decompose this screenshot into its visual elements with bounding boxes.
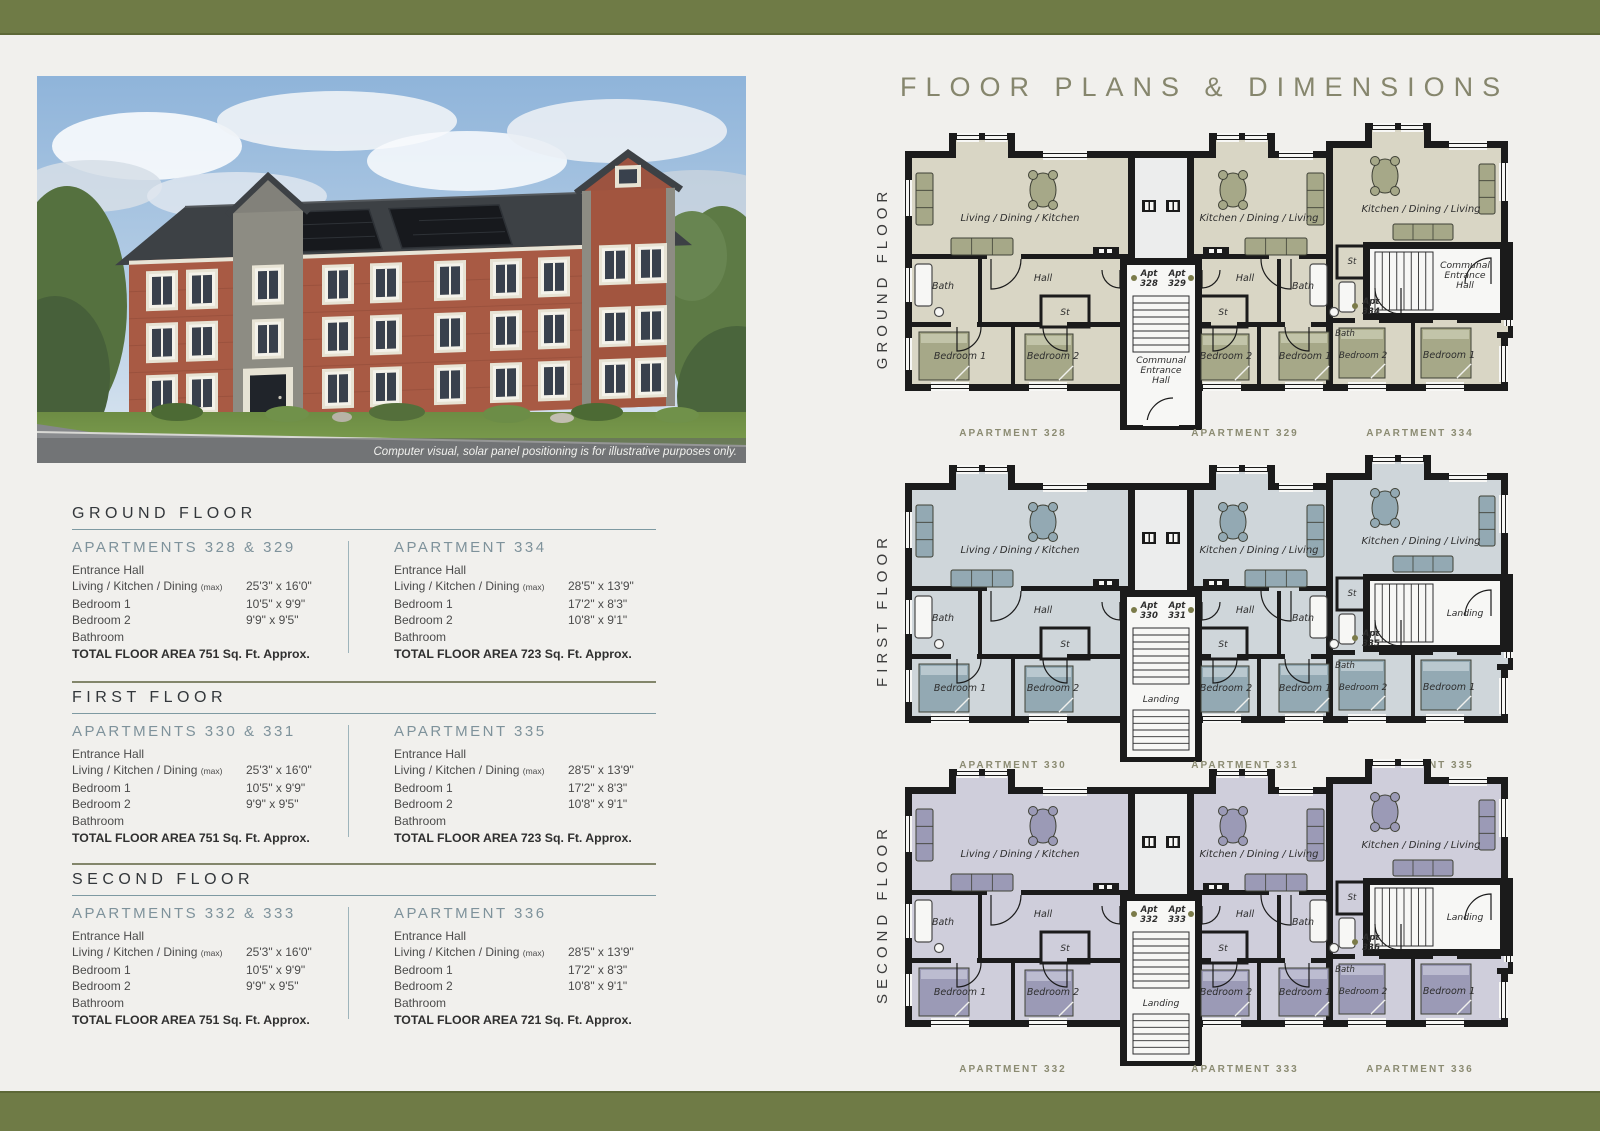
svg-text:336: 336 <box>1362 943 1380 953</box>
spec-row: Bedroom 2 9'9" x 9'5" <box>72 796 342 812</box>
column-divider <box>348 541 349 653</box>
spec-row: Bedroom 2 9'9" x 9'5" <box>72 978 342 994</box>
svg-text:Bedroom 2: Bedroom 2 <box>1027 351 1079 362</box>
room-name: Entrance Hall <box>72 929 144 943</box>
svg-text:Hall: Hall <box>1236 909 1255 920</box>
building-photo: Computer visual, solar panel positioning… <box>37 76 746 463</box>
svg-text:Bedroom 2: Bedroom 2 <box>1027 987 1079 998</box>
room-dimensions: 28'5" x 13'9" <box>568 944 634 960</box>
room-dimensions: 28'5" x 13'9" <box>568 578 634 594</box>
svg-text:332: 332 <box>1140 915 1158 925</box>
room-name: Bedroom 1 <box>394 963 453 977</box>
room-dimensions: 25'3" x 16'0" <box>246 578 312 594</box>
room-name: Living / Kitchen / Dining (max) <box>394 945 544 959</box>
spec-row: Entrance Hall <box>72 746 342 762</box>
svg-text:Hall: Hall <box>1152 375 1170 386</box>
svg-text:Bedroom 1: Bedroom 1 <box>934 351 986 362</box>
room-name: Entrance Hall <box>394 747 466 761</box>
svg-text:Kitchen / Dining / Living: Kitchen / Dining / Living <box>1199 213 1318 224</box>
svg-text:St: St <box>1060 944 1070 954</box>
room-name: Bedroom 1 <box>72 781 131 795</box>
spec-row: Bedroom 1 17'2" x 8'3" <box>394 780 656 796</box>
spec-row: Living / Kitchen / Dining (max) 25'3" x … <box>72 762 342 779</box>
floor-plan-second-floor: Apt332Apt333Apt336Living / Dining / Kitc… <box>893 754 1513 1076</box>
room-dimensions: 10'8" x 9'1" <box>568 612 627 628</box>
spec-row: Entrance Hall <box>394 562 656 578</box>
max-note: (max) <box>201 582 223 592</box>
svg-text:Bedroom 2: Bedroom 2 <box>1339 351 1388 361</box>
room-dimensions: 10'8" x 9'1" <box>568 796 627 812</box>
svg-text:Hall: Hall <box>1034 909 1053 920</box>
floor-plan-svg: Apt328Apt329Apt334Living / Dining / Kitc… <box>893 118 1513 440</box>
svg-text:Apt: Apt <box>1168 601 1187 611</box>
svg-text:Apt: Apt <box>1140 905 1159 915</box>
svg-text:Bath: Bath <box>1335 965 1355 975</box>
spec-row: Bedroom 1 17'2" x 8'3" <box>394 962 656 978</box>
spec-row: Bathroom <box>394 813 656 829</box>
solar-panel <box>389 204 512 248</box>
room-dimensions: 10'5" x 9'9" <box>246 962 305 978</box>
page-title: FLOOR PLANS & DIMENSIONS <box>900 72 1460 103</box>
svg-text:Bath: Bath <box>1292 917 1314 928</box>
spec-row: Bathroom <box>72 995 342 1011</box>
total-floor-area: TOTAL FLOOR AREA 751 Sq. Ft. Approx. <box>72 647 342 661</box>
svg-text:Bath: Bath <box>932 281 954 292</box>
photo-caption: Computer visual, solar panel positioning… <box>374 446 738 458</box>
total-floor-area: TOTAL FLOOR AREA 751 Sq. Ft. Approx. <box>72 831 342 845</box>
room-name: Bedroom 2 <box>72 979 131 993</box>
building-photo-illustration: Computer visual, solar panel positioning… <box>37 76 746 463</box>
room-dimensions: 10'8" x 9'1" <box>568 978 627 994</box>
svg-text:St: St <box>1218 944 1228 954</box>
spec-row: Living / Kitchen / Dining (max) 28'5" x … <box>394 944 656 961</box>
spec-row: Bathroom <box>394 995 656 1011</box>
svg-text:Bedroom 1: Bedroom 1 <box>1279 987 1331 998</box>
spec-column: APARTMENTS 328 & 329 Entrance Hall Livin… <box>72 539 342 661</box>
room-dimensions: 9'9" x 9'5" <box>246 978 298 994</box>
room-name: Living / Kitchen / Dining (max) <box>394 579 544 593</box>
svg-text:Bath: Bath <box>1292 613 1314 624</box>
spec-row: Living / Kitchen / Dining (max) 25'3" x … <box>72 944 342 961</box>
svg-text:Landing: Landing <box>1143 694 1180 705</box>
floor-heading: SECOND FLOOR <box>72 871 656 889</box>
room-name: Entrance Hall <box>394 563 466 577</box>
room-name: Bedroom 2 <box>72 797 131 811</box>
room-name: Living / Kitchen / Dining (max) <box>72 579 222 593</box>
total-floor-area: TOTAL FLOOR AREA 723 Sq. Ft. Approx. <box>394 647 656 661</box>
floor-plan-svg: Apt330Apt331Apt335Living / Dining / Kitc… <box>893 450 1513 772</box>
apartment-heading: APARTMENT 336 <box>394 905 656 922</box>
svg-text:Hall: Hall <box>1236 273 1255 284</box>
svg-text:333: 333 <box>1168 915 1186 925</box>
svg-text:Living / Dining / Kitchen: Living / Dining / Kitchen <box>960 849 1079 860</box>
svg-text:Apt: Apt <box>1168 269 1187 279</box>
room-name: Bedroom 2 <box>394 797 453 811</box>
apartment-heading: APARTMENTS 330 & 331 <box>72 723 342 740</box>
room-dimensions: 17'2" x 8'3" <box>568 596 627 612</box>
floor-side-label: SECOND FLOOR <box>874 764 894 1064</box>
room-dimensions: 9'9" x 9'5" <box>246 612 298 628</box>
apartment-heading: APARTMENTS 328 & 329 <box>72 539 342 556</box>
total-floor-area: TOTAL FLOOR AREA 723 Sq. Ft. Approx. <box>394 831 656 845</box>
spec-row: Bathroom <box>72 629 342 645</box>
svg-text:Bath: Bath <box>932 917 954 928</box>
svg-text:Bedroom 1: Bedroom 1 <box>1423 682 1475 693</box>
spec-row: Bedroom 2 10'8" x 9'1" <box>394 978 656 994</box>
svg-text:330: 330 <box>1140 611 1158 621</box>
svg-text:Kitchen / Dining / Living: Kitchen / Dining / Living <box>1361 204 1480 215</box>
svg-text:Bath: Bath <box>932 613 954 624</box>
spec-columns: APARTMENTS 330 & 331 Entrance Hall Livin… <box>72 723 656 847</box>
top-olive-bar <box>0 0 1600 35</box>
room-dimensions: 9'9" x 9'5" <box>246 796 298 812</box>
spec-row: Living / Kitchen / Dining (max) 25'3" x … <box>72 578 342 595</box>
max-note: (max) <box>523 766 545 776</box>
apartment-caption: APARTMENT 334 <box>1366 428 1474 439</box>
room-dimensions: 17'2" x 8'3" <box>568 780 627 796</box>
max-note: (max) <box>523 582 545 592</box>
room-name: Bathroom <box>394 996 446 1010</box>
spec-section-ground-floor: GROUND FLOOR APARTMENTS 328 & 329 Entran… <box>72 505 656 663</box>
svg-text:Kitchen / Dining / Living: Kitchen / Dining / Living <box>1361 536 1480 547</box>
svg-text:Bedroom 2: Bedroom 2 <box>1027 683 1079 694</box>
svg-text:Living / Dining / Kitchen: Living / Dining / Kitchen <box>960 545 1079 556</box>
room-name: Bedroom 1 <box>394 781 453 795</box>
room-name: Living / Kitchen / Dining (max) <box>394 763 544 777</box>
spec-column: APARTMENT 335 Entrance Hall Living / Kit… <box>394 723 656 845</box>
room-dimensions: 25'3" x 16'0" <box>246 762 312 778</box>
svg-text:Apt: Apt <box>1362 297 1381 307</box>
spec-row: Entrance Hall <box>394 928 656 944</box>
room-name: Bedroom 2 <box>394 613 453 627</box>
svg-text:Landing: Landing <box>1447 912 1484 923</box>
apartment-heading: APARTMENTS 332 & 333 <box>72 905 342 922</box>
svg-text:Landing: Landing <box>1447 608 1484 619</box>
svg-text:Bedroom 2: Bedroom 2 <box>1200 683 1252 694</box>
svg-text:Bedroom 1: Bedroom 1 <box>934 683 986 694</box>
room-name: Entrance Hall <box>72 563 144 577</box>
svg-text:Living / Dining / Kitchen: Living / Dining / Kitchen <box>960 213 1079 224</box>
total-floor-area: TOTAL FLOOR AREA 721 Sq. Ft. Approx. <box>394 1013 656 1027</box>
svg-text:Hall: Hall <box>1034 273 1053 284</box>
svg-text:335: 335 <box>1362 639 1380 649</box>
svg-text:Bedroom 1: Bedroom 1 <box>1279 683 1331 694</box>
max-note: (max) <box>523 948 545 958</box>
spec-row: Entrance Hall <box>72 928 342 944</box>
svg-text:Bedroom 2: Bedroom 2 <box>1339 683 1388 693</box>
apartment-heading: APARTMENT 335 <box>394 723 656 740</box>
spec-row: Bedroom 2 10'8" x 9'1" <box>394 796 656 812</box>
spec-row: Living / Kitchen / Dining (max) 28'5" x … <box>394 578 656 595</box>
svg-text:St: St <box>1348 257 1357 267</box>
svg-text:St: St <box>1218 640 1228 650</box>
svg-text:Kitchen / Dining / Living: Kitchen / Dining / Living <box>1199 545 1318 556</box>
spec-column: APARTMENT 334 Entrance Hall Living / Kit… <box>394 539 656 661</box>
apartment-caption: APARTMENT 328 <box>959 428 1067 439</box>
spec-row: Entrance Hall <box>72 562 342 578</box>
svg-text:Landing: Landing <box>1143 998 1180 1009</box>
room-name: Entrance Hall <box>72 747 144 761</box>
svg-text:St: St <box>1060 640 1070 650</box>
heading-rule <box>72 895 656 896</box>
svg-text:Bath: Bath <box>1335 661 1355 671</box>
svg-text:Bedroom 1: Bedroom 1 <box>1279 351 1331 362</box>
spec-row: Living / Kitchen / Dining (max) 28'5" x … <box>394 762 656 779</box>
room-name: Bedroom 2 <box>394 979 453 993</box>
room-name: Living / Kitchen / Dining (max) <box>72 945 222 959</box>
room-name: Bathroom <box>394 814 446 828</box>
room-name: Bedroom 2 <box>72 613 131 627</box>
svg-text:334: 334 <box>1362 307 1380 317</box>
svg-text:Apt: Apt <box>1140 269 1159 279</box>
brochure-page: Computer visual, solar panel positioning… <box>0 0 1600 1131</box>
floor-plan-svg: Apt332Apt333Apt336Living / Dining / Kitc… <box>893 754 1513 1076</box>
floor-heading: GROUND FLOOR <box>72 505 656 523</box>
svg-text:Apt: Apt <box>1362 933 1381 943</box>
svg-text:Bedroom 2: Bedroom 2 <box>1339 987 1388 997</box>
svg-text:Bedroom 2: Bedroom 2 <box>1200 351 1252 362</box>
floor-plan-ground-floor: Apt328Apt329Apt334Living / Dining / Kitc… <box>893 118 1513 440</box>
spec-section-second-floor: SECOND FLOOR APARTMENTS 332 & 333 Entran… <box>72 863 656 1029</box>
room-name: Bedroom 1 <box>394 597 453 611</box>
spec-row: Bedroom 1 10'5" x 9'9" <box>72 780 342 796</box>
floor-side-label: FIRST FLOOR <box>874 460 894 760</box>
spec-column: APARTMENTS 330 & 331 Entrance Hall Livin… <box>72 723 342 845</box>
max-note: (max) <box>201 766 223 776</box>
svg-text:Apt: Apt <box>1362 629 1381 639</box>
spec-row: Bathroom <box>72 813 342 829</box>
room-dimensions: 17'2" x 8'3" <box>568 962 627 978</box>
svg-text:Hall: Hall <box>1456 280 1474 291</box>
column-divider <box>348 907 349 1019</box>
svg-text:St: St <box>1348 893 1357 903</box>
max-note: (max) <box>201 948 223 958</box>
room-name: Bathroom <box>72 996 124 1010</box>
column-divider <box>348 725 349 837</box>
room-dimensions: 10'5" x 9'9" <box>246 596 305 612</box>
heading-rule <box>72 713 656 714</box>
apartment-caption: APARTMENT 332 <box>959 1064 1067 1075</box>
apartment-caption: APARTMENT 333 <box>1191 1064 1299 1075</box>
svg-text:331: 331 <box>1168 611 1186 621</box>
svg-text:Bath: Bath <box>1292 281 1314 292</box>
room-name: Entrance Hall <box>394 929 466 943</box>
room-name: Bathroom <box>394 630 446 644</box>
svg-text:St: St <box>1218 308 1228 318</box>
svg-text:Bath: Bath <box>1335 329 1355 339</box>
spec-row: Bedroom 1 10'5" x 9'9" <box>72 962 342 978</box>
room-dimensions: 10'5" x 9'9" <box>246 780 305 796</box>
spec-row: Entrance Hall <box>394 746 656 762</box>
svg-text:Bedroom 1: Bedroom 1 <box>934 987 986 998</box>
room-dimensions: 25'3" x 16'0" <box>246 944 312 960</box>
spec-column: APARTMENTS 332 & 333 Entrance Hall Livin… <box>72 905 342 1027</box>
room-dimensions: 28'5" x 13'9" <box>568 762 634 778</box>
spec-row: Bedroom 1 17'2" x 8'3" <box>394 596 656 612</box>
spec-columns: APARTMENTS 328 & 329 Entrance Hall Livin… <box>72 539 656 663</box>
svg-text:Kitchen / Dining / Living: Kitchen / Dining / Living <box>1361 840 1480 851</box>
spec-section-first-floor: FIRST FLOOR APARTMENTS 330 & 331 Entranc… <box>72 681 656 847</box>
spec-columns: APARTMENTS 332 & 333 Entrance Hall Livin… <box>72 905 656 1029</box>
svg-text:Bedroom 2: Bedroom 2 <box>1200 987 1252 998</box>
svg-text:St: St <box>1348 589 1357 599</box>
svg-text:St: St <box>1060 308 1070 318</box>
floor-side-label: GROUND FLOOR <box>874 128 894 428</box>
room-name: Bedroom 1 <box>72 963 131 977</box>
total-floor-area: TOTAL FLOOR AREA 751 Sq. Ft. Approx. <box>72 1013 342 1027</box>
floor-plan-first-floor: Apt330Apt331Apt335Living / Dining / Kitc… <box>893 450 1513 772</box>
svg-text:Hall: Hall <box>1034 605 1053 616</box>
svg-text:Apt: Apt <box>1140 601 1159 611</box>
svg-text:328: 328 <box>1140 279 1158 289</box>
apartment-caption: APARTMENT 336 <box>1366 1064 1474 1075</box>
spec-row: Bedroom 2 10'8" x 9'1" <box>394 612 656 628</box>
room-name: Bathroom <box>72 630 124 644</box>
spec-row: Bedroom 1 10'5" x 9'9" <box>72 596 342 612</box>
apartment-heading: APARTMENT 334 <box>394 539 656 556</box>
apartment-caption: APARTMENT 329 <box>1191 428 1299 439</box>
svg-text:Kitchen / Dining / Living: Kitchen / Dining / Living <box>1199 849 1318 860</box>
spec-row: Bedroom 2 9'9" x 9'5" <box>72 612 342 628</box>
floor-heading: FIRST FLOOR <box>72 689 656 707</box>
spec-row: Bathroom <box>394 629 656 645</box>
room-name: Bedroom 1 <box>72 597 131 611</box>
svg-text:Hall: Hall <box>1236 605 1255 616</box>
svg-text:329: 329 <box>1168 279 1186 289</box>
bottom-olive-bar <box>0 1091 1600 1131</box>
room-name: Bathroom <box>72 814 124 828</box>
heading-rule <box>72 529 656 530</box>
svg-text:Bedroom 1: Bedroom 1 <box>1423 350 1475 361</box>
svg-text:Apt: Apt <box>1168 905 1187 915</box>
room-name: Living / Kitchen / Dining (max) <box>72 763 222 777</box>
spec-column: APARTMENT 336 Entrance Hall Living / Kit… <box>394 905 656 1027</box>
svg-text:Bedroom 1: Bedroom 1 <box>1423 986 1475 997</box>
